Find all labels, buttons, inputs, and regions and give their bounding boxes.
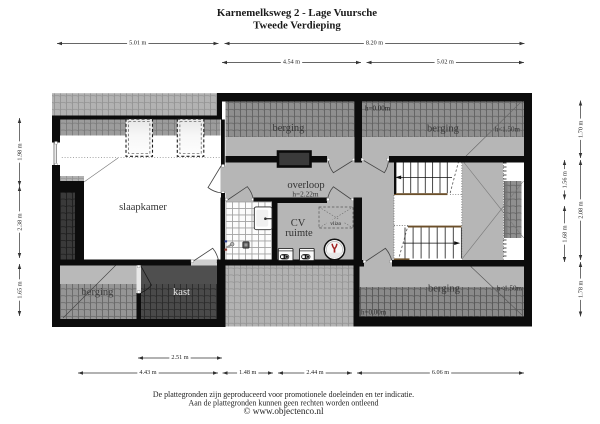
svg-text:6.06 m: 6.06 m <box>432 369 449 376</box>
svg-text:2.38 m: 2.38 m <box>17 213 24 230</box>
svg-text:berging: berging <box>82 287 115 298</box>
svg-text:kast: kast <box>173 287 190 298</box>
svg-text:© www.objectenco.nl: © www.objectenco.nl <box>243 406 324 416</box>
svg-text:1.98 m: 1.98 m <box>17 143 24 160</box>
svg-text:4.54 m: 4.54 m <box>283 58 300 65</box>
svg-text:berging: berging <box>427 124 460 135</box>
svg-text:1.78 m: 1.78 m <box>578 280 585 297</box>
svg-text:berging: berging <box>273 123 306 134</box>
svg-text:5.01 m: 5.01 m <box>129 39 146 46</box>
svg-text:1.70 m: 1.70 m <box>578 120 585 137</box>
svg-text:Karnemelksweg 2 - Lage Vuursch: Karnemelksweg 2 - Lage Vuursche <box>217 7 377 19</box>
svg-text:2.51 m: 2.51 m <box>171 354 188 361</box>
svg-text:Tweede Verdieping: Tweede Verdieping <box>253 20 341 32</box>
svg-text:berging: berging <box>428 284 461 295</box>
svg-text:ruimte: ruimte <box>285 228 313 239</box>
svg-text:2.44 m: 2.44 m <box>306 369 323 376</box>
svg-text:1.68 m: 1.68 m <box>562 225 569 242</box>
svg-text:2.08 m: 2.08 m <box>578 201 585 218</box>
svg-text:slaapkamer: slaapkamer <box>119 202 167 213</box>
svg-text:1.56 m: 1.56 m <box>562 171 569 188</box>
svg-text:h<1.50m: h<1.50m <box>495 126 521 134</box>
svg-text:h=0,00m: h=0,00m <box>361 309 387 317</box>
svg-text:h=0.00m: h=0.00m <box>365 105 391 113</box>
svg-text:1.48 m: 1.48 m <box>239 369 256 376</box>
svg-text:1.65 m: 1.65 m <box>17 281 24 298</box>
svg-text:h<1.50m: h<1.50m <box>497 285 523 293</box>
svg-text:4.43 m: 4.43 m <box>139 369 156 376</box>
svg-text:vlizo: vlizo <box>330 221 341 227</box>
svg-text:h=2.22m: h=2.22m <box>292 190 319 199</box>
svg-text:5.02 m: 5.02 m <box>437 58 454 65</box>
svg-text:8.20 m: 8.20 m <box>366 39 383 46</box>
